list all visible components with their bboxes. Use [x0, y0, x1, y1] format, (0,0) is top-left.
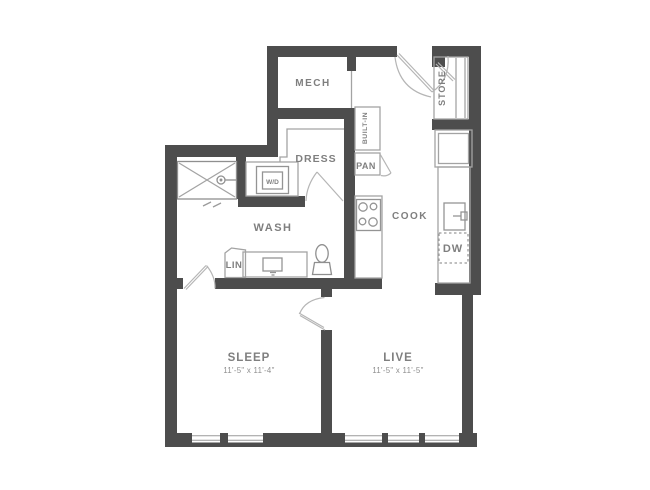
sleep-door-leaf [299, 313, 324, 328]
wall-right-upper [469, 46, 481, 295]
label-dress: DRESS [295, 153, 336, 165]
vanity [243, 252, 307, 277]
stove-burner [359, 218, 366, 225]
fridge-inner [439, 134, 469, 164]
wash-door-leaf [184, 266, 206, 289]
label-dw: DW [443, 243, 463, 255]
sleep-door-leaf [300, 316, 325, 331]
stove-burner [370, 203, 377, 210]
label-cook: COOK [392, 211, 428, 222]
entry-door-leaf [397, 55, 432, 92]
vanity-sink [263, 258, 282, 271]
label-live: LIVE [383, 352, 413, 364]
label-built-in: BUILT-IN [362, 112, 369, 144]
wall-wash-bottom [215, 278, 382, 289]
wall-left [165, 145, 177, 447]
window-live-mullion [382, 433, 388, 443]
wall-right-lower [462, 288, 473, 447]
sleep-dimensions: 11'-5" x 11'-4" [223, 366, 274, 375]
wash-door-leaf [186, 267, 208, 290]
sleep-door-arc [300, 298, 325, 315]
kitchen-faucet [461, 212, 467, 220]
label-wash: WASH [254, 222, 293, 234]
wall-divider-stub [321, 289, 332, 297]
window-live [345, 433, 459, 443]
stove-burner [359, 203, 367, 211]
label-lin: LIN [226, 260, 243, 271]
shower-head-dot [220, 179, 222, 181]
label-pan: PAN [356, 161, 376, 171]
fixtures [178, 57, 473, 283]
stove-burner [369, 218, 377, 226]
wash-door-arc [207, 266, 216, 289]
store-door-arc [395, 57, 431, 97]
wall-top [267, 46, 397, 57]
dress-door-arc [306, 172, 317, 201]
window-sleep-mullion [220, 433, 228, 443]
wall-shower-stub [236, 157, 246, 199]
wall-divider [321, 330, 332, 433]
floor-plan-canvas: MECH STORE BUILT-IN DRESS PAN W/D WASH C… [0, 0, 650, 490]
wall-bath-top [165, 145, 278, 157]
label-wd: W/D [266, 179, 279, 186]
dress-door-leaf [317, 172, 343, 201]
wall-wd-bottom [238, 196, 305, 207]
wall-mech-left [267, 46, 278, 157]
window-live-mullion [419, 433, 425, 443]
wall-mech-door-stub [347, 57, 356, 71]
floor-slope-tick [203, 202, 211, 206]
wall-wash-door-stub [165, 278, 183, 289]
toilet-tank [313, 263, 332, 275]
label-store: STORE [437, 70, 447, 106]
entry-door-leaf [399, 54, 434, 91]
wall-wash-kitchen [344, 108, 355, 289]
floor-slope-tick [213, 203, 221, 207]
floor-plan-svg: MECH STORE BUILT-IN DRESS PAN W/D WASH C… [0, 0, 650, 490]
fridge [435, 130, 472, 167]
wall-counter-cap [435, 283, 481, 295]
shower-head-icon [217, 176, 225, 184]
label-sleep: SLEEP [228, 352, 271, 364]
wall-mech-bottom [267, 108, 350, 119]
pan-door-leaf [380, 154, 391, 173]
toilet-bowl [316, 245, 328, 263]
label-mech: MECH [295, 78, 330, 89]
live-dimensions: 11'-5" x 11'-5" [372, 366, 423, 375]
pan-door-arc [381, 173, 391, 176]
